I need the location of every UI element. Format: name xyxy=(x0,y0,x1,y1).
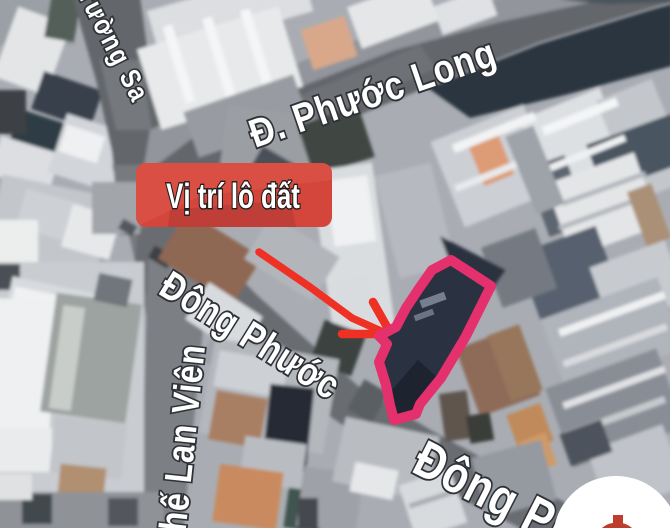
svg-text:Vị trí lô đất: Vị trí lô đất xyxy=(166,176,300,216)
